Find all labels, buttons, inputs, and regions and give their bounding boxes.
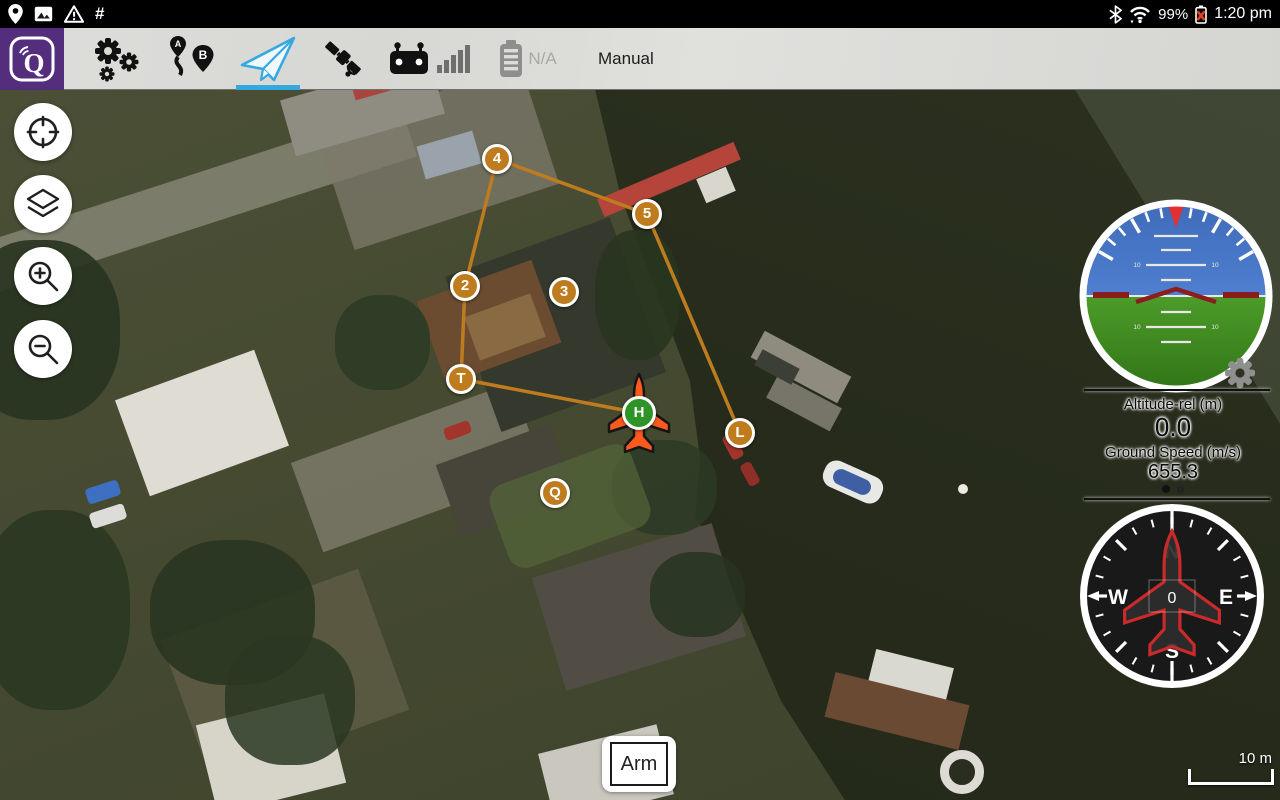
wifi-icon	[1129, 5, 1151, 24]
waypoint-5[interactable]: 5	[632, 199, 662, 229]
battery-icon	[499, 40, 523, 78]
panel-divider	[1084, 498, 1270, 500]
svg-text:Q: Q	[23, 48, 44, 78]
ground-speed-label: Ground Speed (m/s)	[1066, 444, 1280, 461]
zoom-out-button[interactable]	[14, 320, 72, 378]
zoom-in-icon	[25, 258, 61, 294]
bluetooth-icon	[1109, 5, 1122, 24]
map-scale-bar: 10 m	[1188, 750, 1274, 785]
warning-icon	[64, 5, 84, 23]
qgc-logo[interactable]: Q	[0, 28, 64, 90]
flight-mode-selector[interactable]: Manual	[598, 49, 654, 69]
tab-settings[interactable]	[78, 28, 154, 90]
rc-signal-bars-icon	[437, 43, 471, 75]
page-dot-active	[1162, 485, 1170, 493]
status-right-icons: 99% 1:20 pm	[1109, 5, 1280, 24]
svg-text:10: 10	[1211, 324, 1219, 331]
svg-text:10: 10	[1133, 262, 1141, 269]
center-map-button[interactable]	[14, 103, 72, 161]
tab-plan[interactable]: A B	[154, 28, 230, 90]
waypoint-4[interactable]: 4	[482, 144, 512, 174]
android-status-bar: # 99% 1:20 pm	[0, 0, 1280, 28]
tab-rc[interactable]	[380, 28, 480, 90]
app-screen: 4523TLQH #	[0, 0, 1280, 800]
heading-value: 0	[1168, 590, 1177, 607]
svg-text:B: B	[199, 48, 208, 62]
plan-route-icon: A B	[165, 35, 219, 83]
instrument-settings-gear-icon[interactable]	[1222, 355, 1258, 391]
map-layers-button[interactable]	[14, 175, 72, 233]
gears-icon	[91, 36, 141, 82]
battery-percent: 99%	[1158, 6, 1188, 23]
svg-text:W: W	[1108, 586, 1128, 609]
ground-speed-value: 655.3	[1066, 461, 1280, 484]
battery-unknown-icon	[1195, 5, 1207, 24]
image-icon	[34, 6, 53, 22]
arm-button-label: Arm	[610, 742, 668, 786]
page-dot-inactive	[1177, 486, 1184, 493]
panel-divider	[1084, 389, 1270, 391]
paper-plane-icon	[239, 35, 297, 83]
svg-text:10: 10	[1133, 324, 1141, 331]
value-page-dots[interactable]	[1066, 485, 1280, 493]
zoom-in-button[interactable]	[14, 247, 72, 305]
scale-label: 10 m	[1188, 750, 1274, 767]
flight-instrument-panel[interactable]: 10 10 10 10	[1066, 190, 1280, 696]
waypoint-T[interactable]: T	[446, 364, 476, 394]
battery-status-label: N/A	[528, 49, 556, 69]
altitude-label: Altitude-rel (m)	[1066, 396, 1280, 413]
waypoint-L[interactable]: L	[725, 418, 755, 448]
scale-rule	[1188, 769, 1274, 785]
waypoint-2[interactable]: 2	[450, 271, 480, 301]
compass-indicator: N E S W 0	[1078, 502, 1266, 695]
svg-text:E: E	[1219, 586, 1233, 609]
tab-fly[interactable]	[230, 28, 306, 90]
svg-text:10: 10	[1211, 262, 1219, 269]
svg-text:A: A	[175, 39, 182, 49]
zoom-out-icon	[25, 331, 61, 367]
app-toolbar: Q	[0, 28, 1280, 90]
crosshair-icon	[25, 114, 61, 150]
arm-button[interactable]: Arm	[602, 736, 676, 792]
waypoint-H[interactable]: H	[622, 396, 656, 430]
tab-battery[interactable]: N/A	[480, 28, 576, 90]
tab-gps[interactable]	[306, 28, 380, 90]
layers-icon	[25, 186, 61, 222]
altitude-value: 0.0	[1066, 412, 1280, 443]
location-icon	[8, 4, 23, 24]
status-left-icons: #	[0, 4, 104, 24]
hash-icon: #	[95, 4, 104, 24]
rc-transmitter-icon	[389, 42, 429, 76]
clock: 1:20 pm	[1214, 5, 1272, 23]
waypoint-3[interactable]: 3	[549, 277, 579, 307]
satellite-icon	[321, 38, 365, 80]
waypoint-Q[interactable]: Q	[540, 478, 570, 508]
